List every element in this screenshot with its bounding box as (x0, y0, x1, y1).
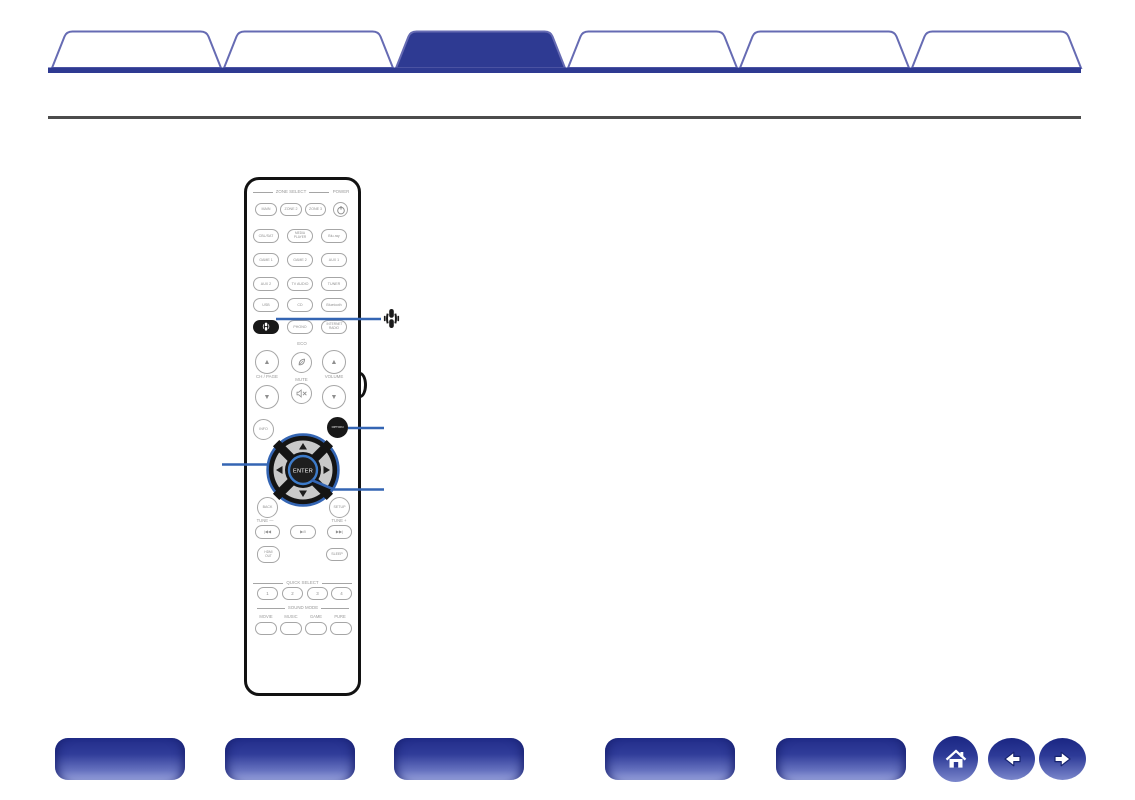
arrow-right-icon (1050, 746, 1076, 772)
internet-radio-button: INTERNET RADIO (321, 320, 347, 334)
tab-2[interactable] (224, 32, 393, 69)
bottom-nav-button-5[interactable] (776, 738, 906, 780)
movie-button (255, 622, 277, 635)
cursor-pad: ENTER (265, 432, 341, 508)
pure-label: PURE (330, 615, 350, 619)
eco-label: ECO (287, 342, 317, 346)
quick-select-label: QUICK SELECT (253, 581, 352, 585)
media-player-button: MEDIA PLAYER (287, 229, 313, 243)
leaf-icon (296, 357, 307, 368)
quick-select-2-button: 2 (282, 587, 303, 600)
phono-button: PHONO (287, 320, 313, 334)
power-icon (336, 205, 346, 215)
quick-select-1-button: 1 (257, 587, 278, 600)
game-button (305, 622, 327, 635)
power-button (333, 202, 348, 217)
tune-minus-label: TUNE — (250, 519, 280, 523)
bottom-nav-button-1[interactable] (55, 738, 185, 780)
zone2-button: ZONE 2 (280, 203, 302, 216)
tab-4[interactable] (568, 32, 737, 69)
sleep-button: SLEEP (326, 548, 348, 561)
zone-select-label: ZONE SELECT (253, 190, 329, 194)
bottom-nav-button-2[interactable] (225, 738, 355, 780)
ch-page-down-button: ▼ (255, 385, 279, 409)
power-label: POWER (329, 190, 353, 194)
ch-page-label: CH / PAGE (249, 375, 285, 379)
tab-3-active[interactable] (396, 32, 565, 69)
pure-button (330, 622, 352, 635)
sound-mode-label: SOUND MODE (257, 606, 349, 610)
music-button (280, 622, 302, 635)
cbl-sat-button: CBL/SAT (253, 229, 279, 243)
ch-page-up-button: ▲ (255, 350, 279, 374)
bottom-nav-button-3[interactable] (394, 738, 524, 780)
tab-6[interactable] (912, 32, 1081, 69)
enter-label: ENTER (293, 468, 313, 474)
heos-speaker-icon (384, 309, 399, 328)
main-button: MAIN (255, 203, 277, 216)
tab-baseline (48, 68, 1081, 74)
game-label: GAME (305, 615, 327, 619)
movie-label: MOVIE (255, 615, 277, 619)
usb-button: USB (253, 298, 279, 312)
play-pause-button: ▶/‖ (290, 525, 316, 539)
arrow-left-icon (999, 746, 1025, 772)
volume-down-button: ▼ (322, 385, 346, 409)
callout-overlay (0, 0, 1135, 800)
back-button: BACK (257, 497, 278, 518)
tv-audio-button: TV AUDIO (287, 277, 313, 291)
skip-back-button: |◀◀ (255, 525, 280, 539)
eco-button (291, 352, 312, 373)
volume-up-button: ▲ (322, 350, 346, 374)
tab-1[interactable] (52, 32, 221, 69)
bluetooth-button: Bluetooth (321, 298, 347, 312)
remote-control-illustration: ZONE SELECT POWER MAIN ZONE 2 ZONE 3 CBL… (244, 177, 361, 696)
section-divider (48, 116, 1081, 119)
hdmi-out-button: HDMI OUT (257, 546, 280, 563)
manual-page: ZONE SELECT POWER MAIN ZONE 2 ZONE 3 CBL… (0, 0, 1135, 800)
game2-button: GAME 2 (287, 253, 313, 267)
tune-plus-label: TUNE + (324, 519, 354, 523)
mute-speaker-icon (296, 389, 308, 398)
home-icon (943, 746, 969, 772)
quick-select-3-button: 3 (307, 587, 328, 600)
quick-select-4-button: 4 (331, 587, 352, 600)
tuner-button: TUNER (321, 277, 347, 291)
top-tab-bar (0, 0, 1135, 80)
music-label: MUSIC (280, 615, 302, 619)
heos-button (253, 320, 279, 334)
forward-page-button[interactable] (1039, 738, 1086, 780)
heos-icon (260, 321, 272, 333)
aux2-button: AUX 2 (253, 277, 279, 291)
bottom-nav-button-4[interactable] (605, 738, 735, 780)
back-page-button[interactable] (988, 738, 1035, 780)
tab-5[interactable] (740, 32, 909, 69)
setup-button: SETUP (329, 497, 350, 518)
mute-button (291, 383, 312, 404)
mute-label: MUTE (291, 378, 312, 382)
cd-button: CD (287, 298, 313, 312)
zone3-button: ZONE 3 (305, 203, 326, 216)
aux1-button: AUX 1 (321, 253, 347, 267)
skip-forward-button: ▶▶| (327, 525, 352, 539)
volume-label: VOLUME (318, 375, 350, 379)
blu-ray-button: Blu-ray (321, 229, 347, 243)
home-button[interactable] (933, 736, 978, 782)
game1-button: GAME 1 (253, 253, 279, 267)
